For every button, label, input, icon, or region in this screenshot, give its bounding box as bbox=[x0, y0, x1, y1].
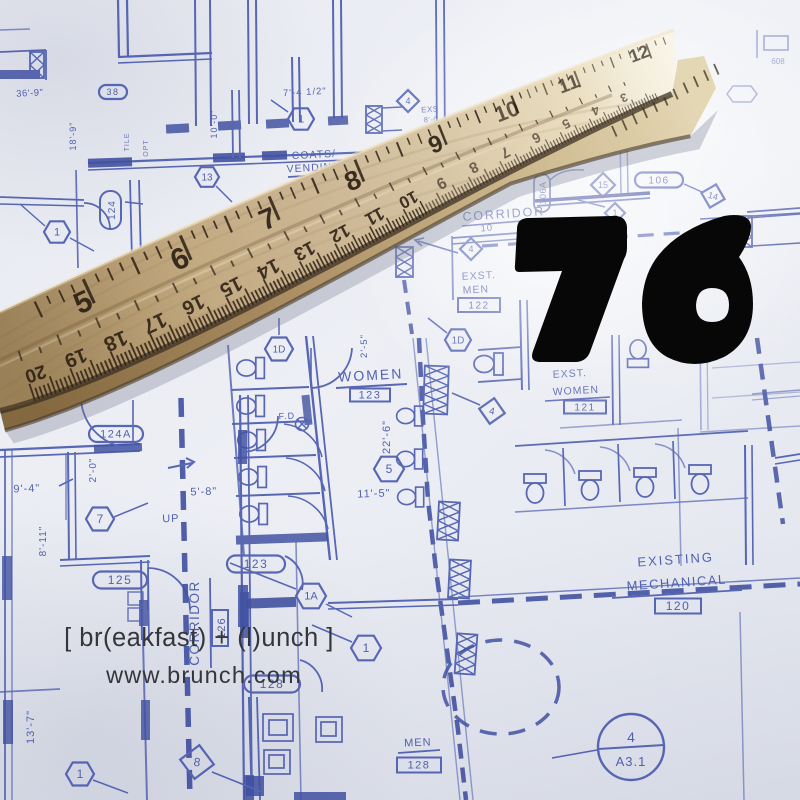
svg-text:A3.1: A3.1 bbox=[616, 754, 647, 769]
svg-text:1: 1 bbox=[298, 114, 304, 126]
svg-text:1: 1 bbox=[363, 641, 370, 655]
svg-text:2'-5": 2'-5" bbox=[359, 334, 370, 358]
svg-text:125: 125 bbox=[108, 573, 133, 587]
svg-text:5'-8": 5'-8" bbox=[190, 486, 217, 499]
svg-text:13'-7": 13'-7" bbox=[25, 710, 37, 744]
svg-text:11'-5": 11'-5" bbox=[357, 487, 391, 500]
svg-text:124: 124 bbox=[107, 200, 118, 220]
svg-text:18'-9": 18'-9" bbox=[68, 122, 78, 151]
svg-text:10'-0": 10'-0" bbox=[209, 110, 219, 139]
svg-text:1A: 1A bbox=[304, 591, 318, 603]
svg-text:[ br(eakfast) + (l)unch ]: [ br(eakfast) + (l)unch ] bbox=[64, 624, 334, 652]
svg-text:www.brunch.com: www.brunch.com bbox=[105, 662, 302, 688]
svg-text:2'-0": 2'-0" bbox=[88, 458, 99, 483]
svg-text:4: 4 bbox=[627, 729, 635, 745]
svg-text:128: 128 bbox=[408, 760, 431, 772]
svg-text:22'-6": 22'-6" bbox=[381, 420, 393, 454]
svg-text:5: 5 bbox=[386, 462, 393, 476]
svg-text:UP: UP bbox=[162, 513, 180, 526]
svg-text:F.D: F.D bbox=[278, 411, 295, 422]
svg-text:8'-11": 8'-11" bbox=[38, 526, 49, 557]
svg-text:123: 123 bbox=[359, 390, 382, 402]
svg-text:MEN: MEN bbox=[404, 737, 432, 750]
svg-text:1D: 1D bbox=[273, 344, 286, 355]
svg-text:CORRIDOR: CORRIDOR bbox=[187, 580, 202, 666]
svg-text:123: 123 bbox=[244, 557, 269, 571]
svg-text:120: 120 bbox=[666, 599, 691, 613]
svg-text:1: 1 bbox=[77, 767, 84, 781]
svg-text:13: 13 bbox=[201, 172, 213, 183]
svg-text:7'-4 1/2": 7'-4 1/2" bbox=[283, 86, 327, 99]
svg-text:TILE: TILE bbox=[124, 133, 131, 152]
svg-text:36'-9": 36'-9" bbox=[16, 87, 44, 99]
svg-text:9'-4": 9'-4" bbox=[13, 483, 40, 496]
svg-text:1: 1 bbox=[54, 227, 60, 239]
svg-text:OPT: OPT bbox=[143, 139, 150, 156]
svg-text:38: 38 bbox=[106, 87, 119, 97]
svg-text:7: 7 bbox=[97, 512, 104, 526]
